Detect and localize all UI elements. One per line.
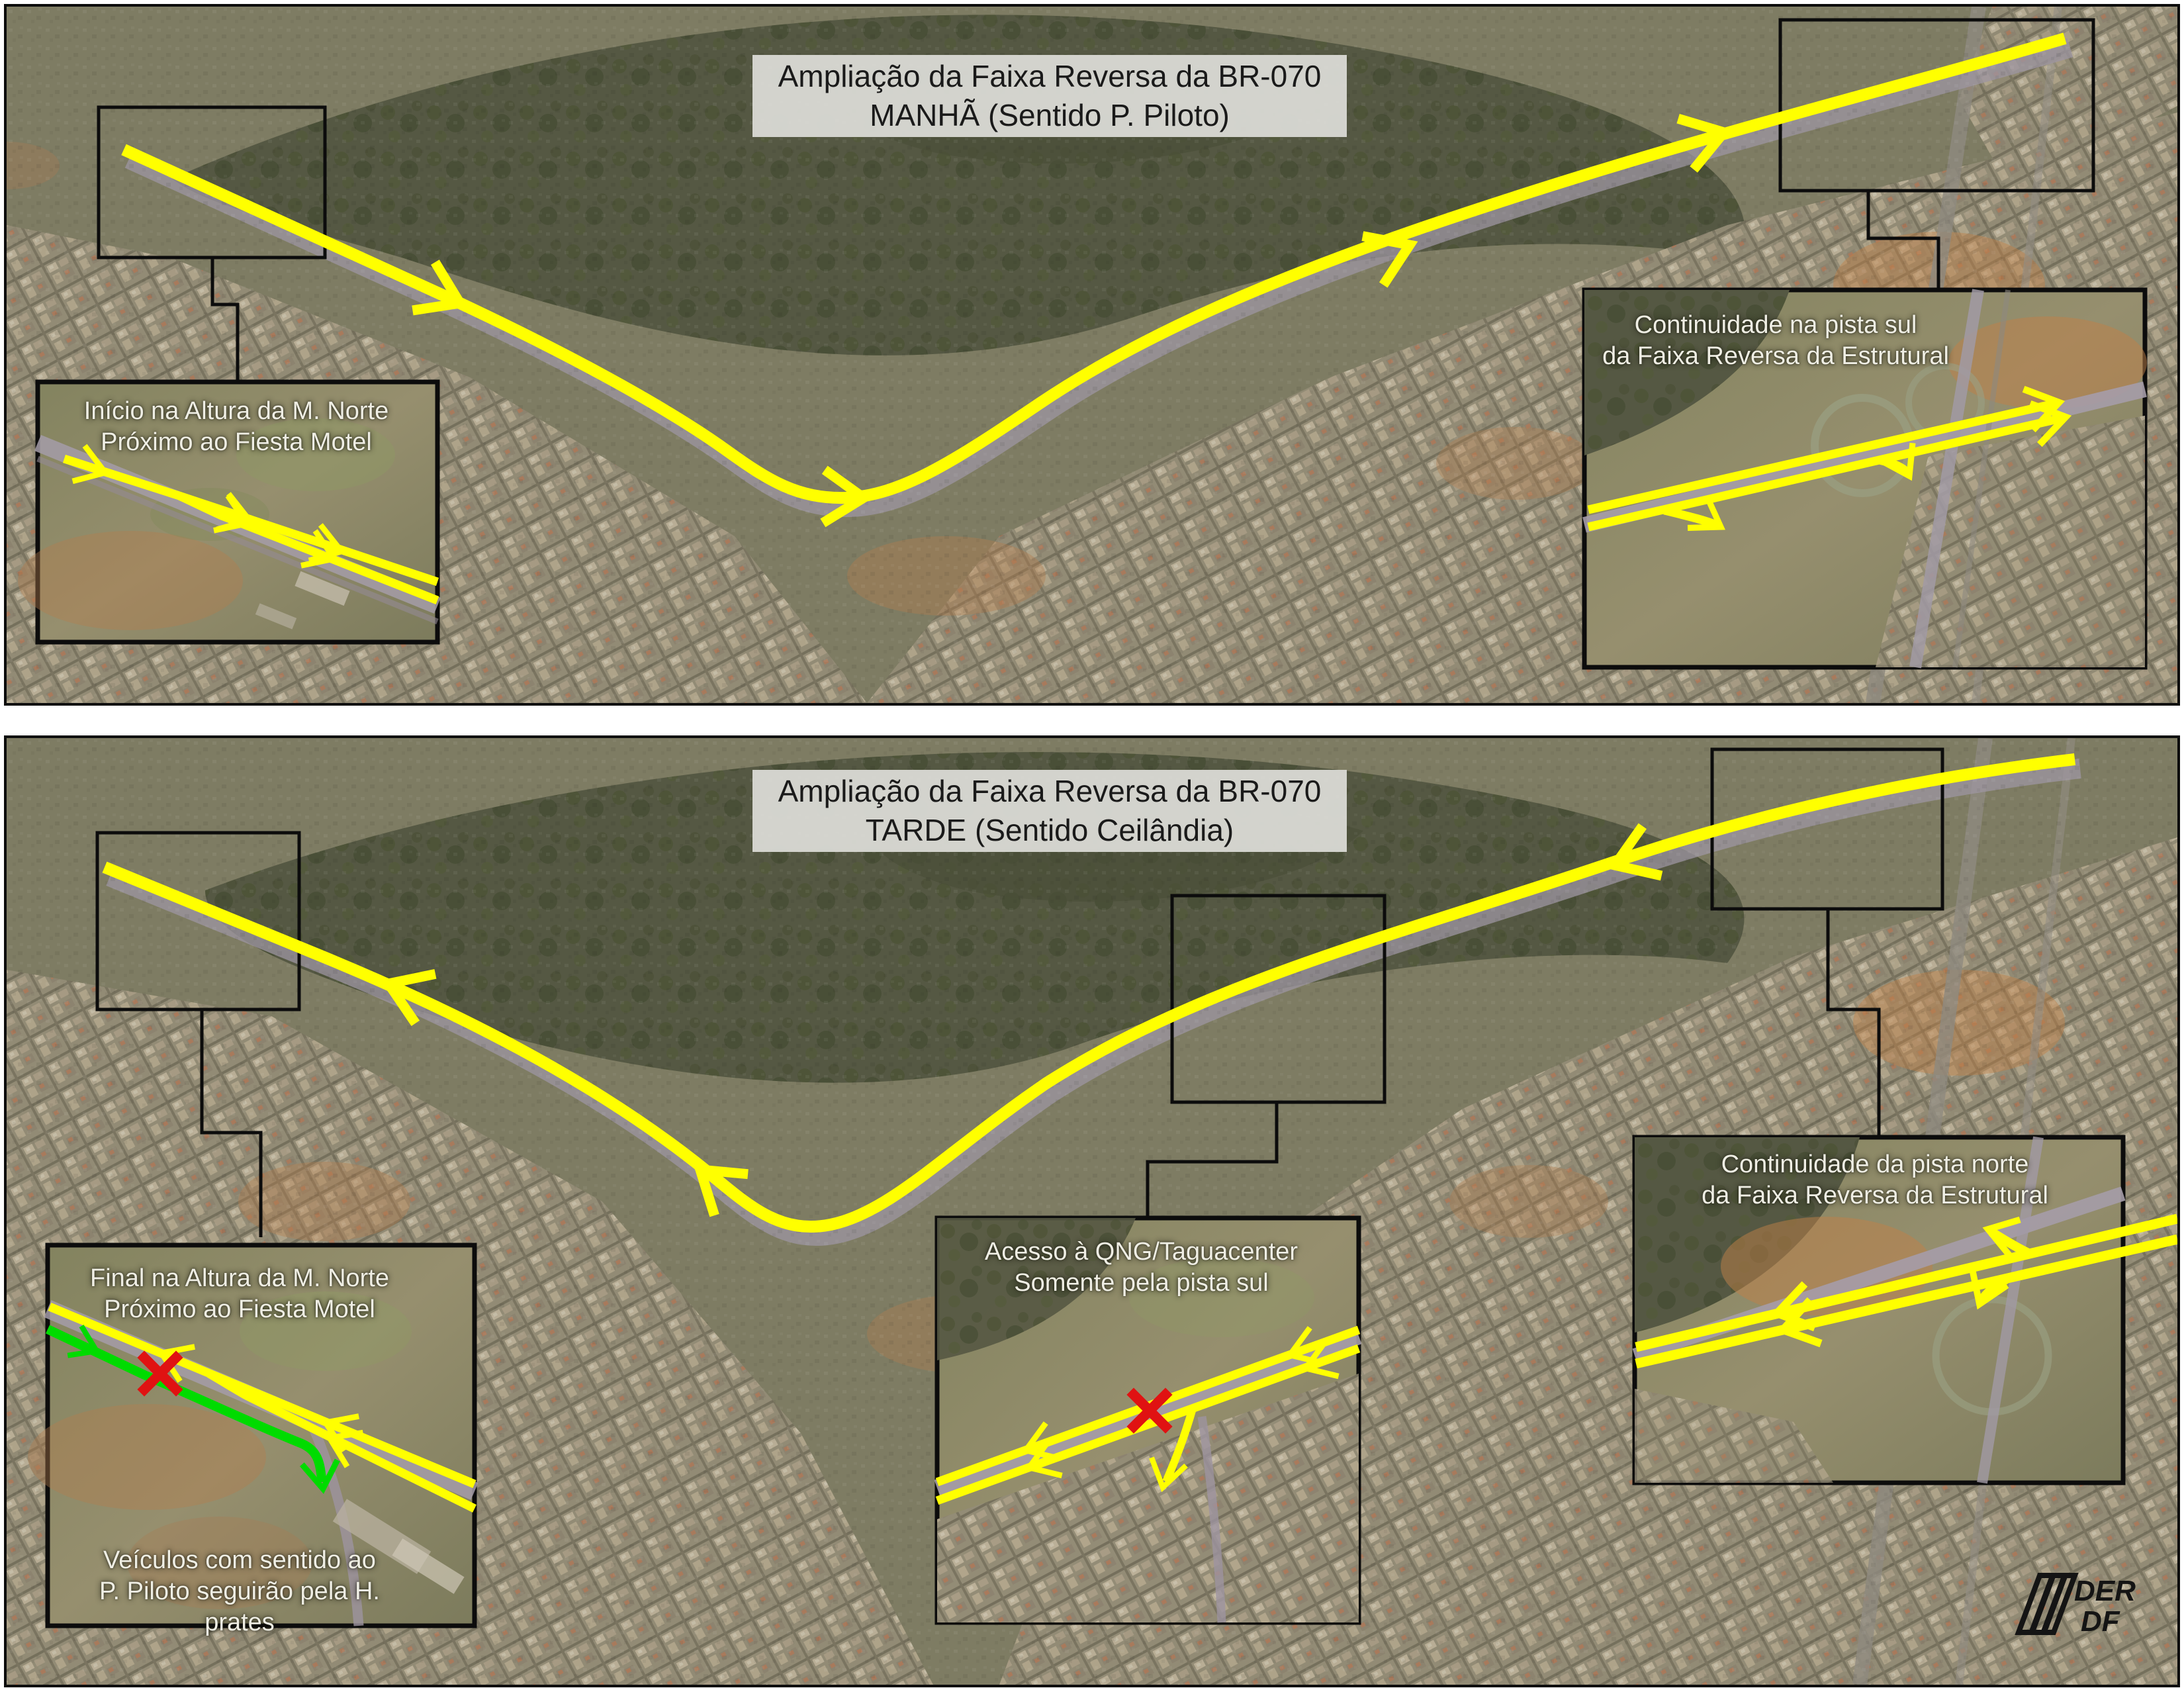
caption-final-top: Final na Altura da M. Norte Próximo ao F… xyxy=(61,1263,418,1325)
caption-inicio: Início na Altura da M. Norte Próximo ao … xyxy=(44,396,428,458)
title-afternoon: Ampliação da Faixa Reversa da BR-070 TAR… xyxy=(752,770,1347,852)
traffic-plan-page: Ampliação da Faixa Reversa da BR-070 MAN… xyxy=(0,0,2184,1688)
caption-line: Continuidade da pista norte xyxy=(1721,1149,2029,1180)
caption-line: Continuidade na pista sul xyxy=(1635,310,1917,341)
caption-line: da Faixa Reversa da Estrutural xyxy=(1602,341,1949,372)
logo-text-der: DER xyxy=(2074,1575,2136,1607)
caption-line: Final na Altura da M. Norte xyxy=(90,1263,389,1294)
caption-line: P. Piloto seguirão pela H. prates xyxy=(61,1576,418,1638)
caption-line: Início na Altura da M. Norte xyxy=(84,396,388,427)
caption-line: Veículos com sentido ao xyxy=(103,1545,376,1576)
caption-line: Acesso à QNG/Taguacenter xyxy=(985,1237,1298,1268)
caption-continuidade-sul: Continuidade na pista sul da Faixa Rever… xyxy=(1590,310,1961,372)
caption-line: da Faixa Reversa da Estrutural xyxy=(1702,1180,2048,1211)
title-afternoon-line1: Ampliação da Faixa Reversa da BR-070 xyxy=(778,772,1322,811)
title-morning: Ampliação da Faixa Reversa da BR-070 MAN… xyxy=(752,55,1347,137)
der-df-logo: DER DF xyxy=(2012,1568,2144,1636)
caption-continuidade-norte: Continuidade da pista norte da Faixa Rev… xyxy=(1690,1149,2060,1211)
caption-line: Próximo ao Fiesta Motel xyxy=(101,427,372,458)
title-morning-line1: Ampliação da Faixa Reversa da BR-070 xyxy=(778,57,1322,96)
afternoon-satellite-map xyxy=(7,738,2177,1685)
caption-final-bottom: Veículos com sentido ao P. Piloto seguir… xyxy=(61,1545,418,1638)
title-afternoon-line2: TARDE (Sentido Ceilândia) xyxy=(866,811,1234,850)
title-morning-line2: MANHÃ (Sentido P. Piloto) xyxy=(870,96,1230,135)
caption-line: Próximo ao Fiesta Motel xyxy=(104,1294,375,1325)
der-df-logo-graphic: DER DF xyxy=(2012,1568,2144,1636)
caption-line: Somente pela pista sul xyxy=(1014,1268,1268,1299)
logo-text-df: DF xyxy=(2081,1605,2120,1636)
caption-acesso-qng: Acesso à QNG/Taguacenter Somente pela pi… xyxy=(950,1237,1332,1299)
